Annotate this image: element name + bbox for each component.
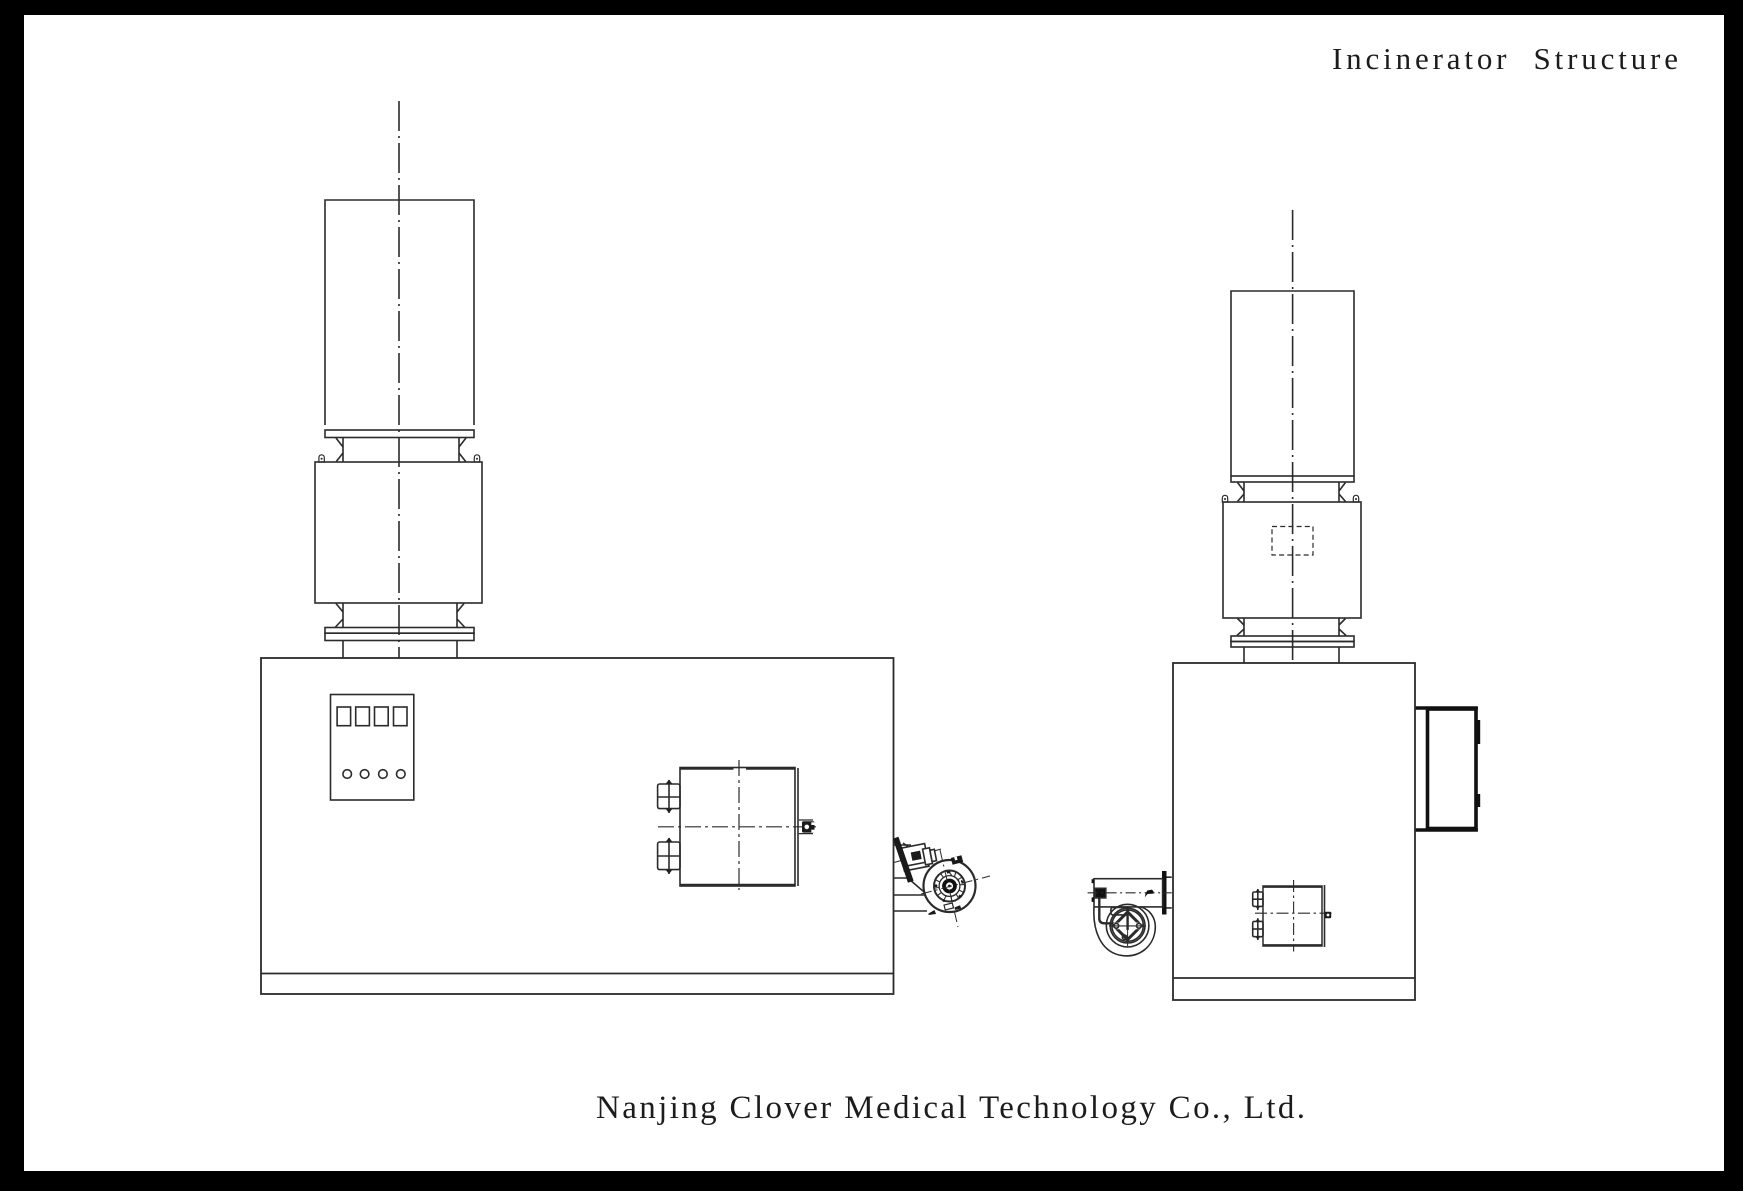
svg-text:Nanjing Clover Medical Technol: Nanjing Clover Medical Technology Co., L… [596,1090,1305,1126]
svg-text:Incinerator Structure: Incinerator Structure [1332,41,1678,76]
